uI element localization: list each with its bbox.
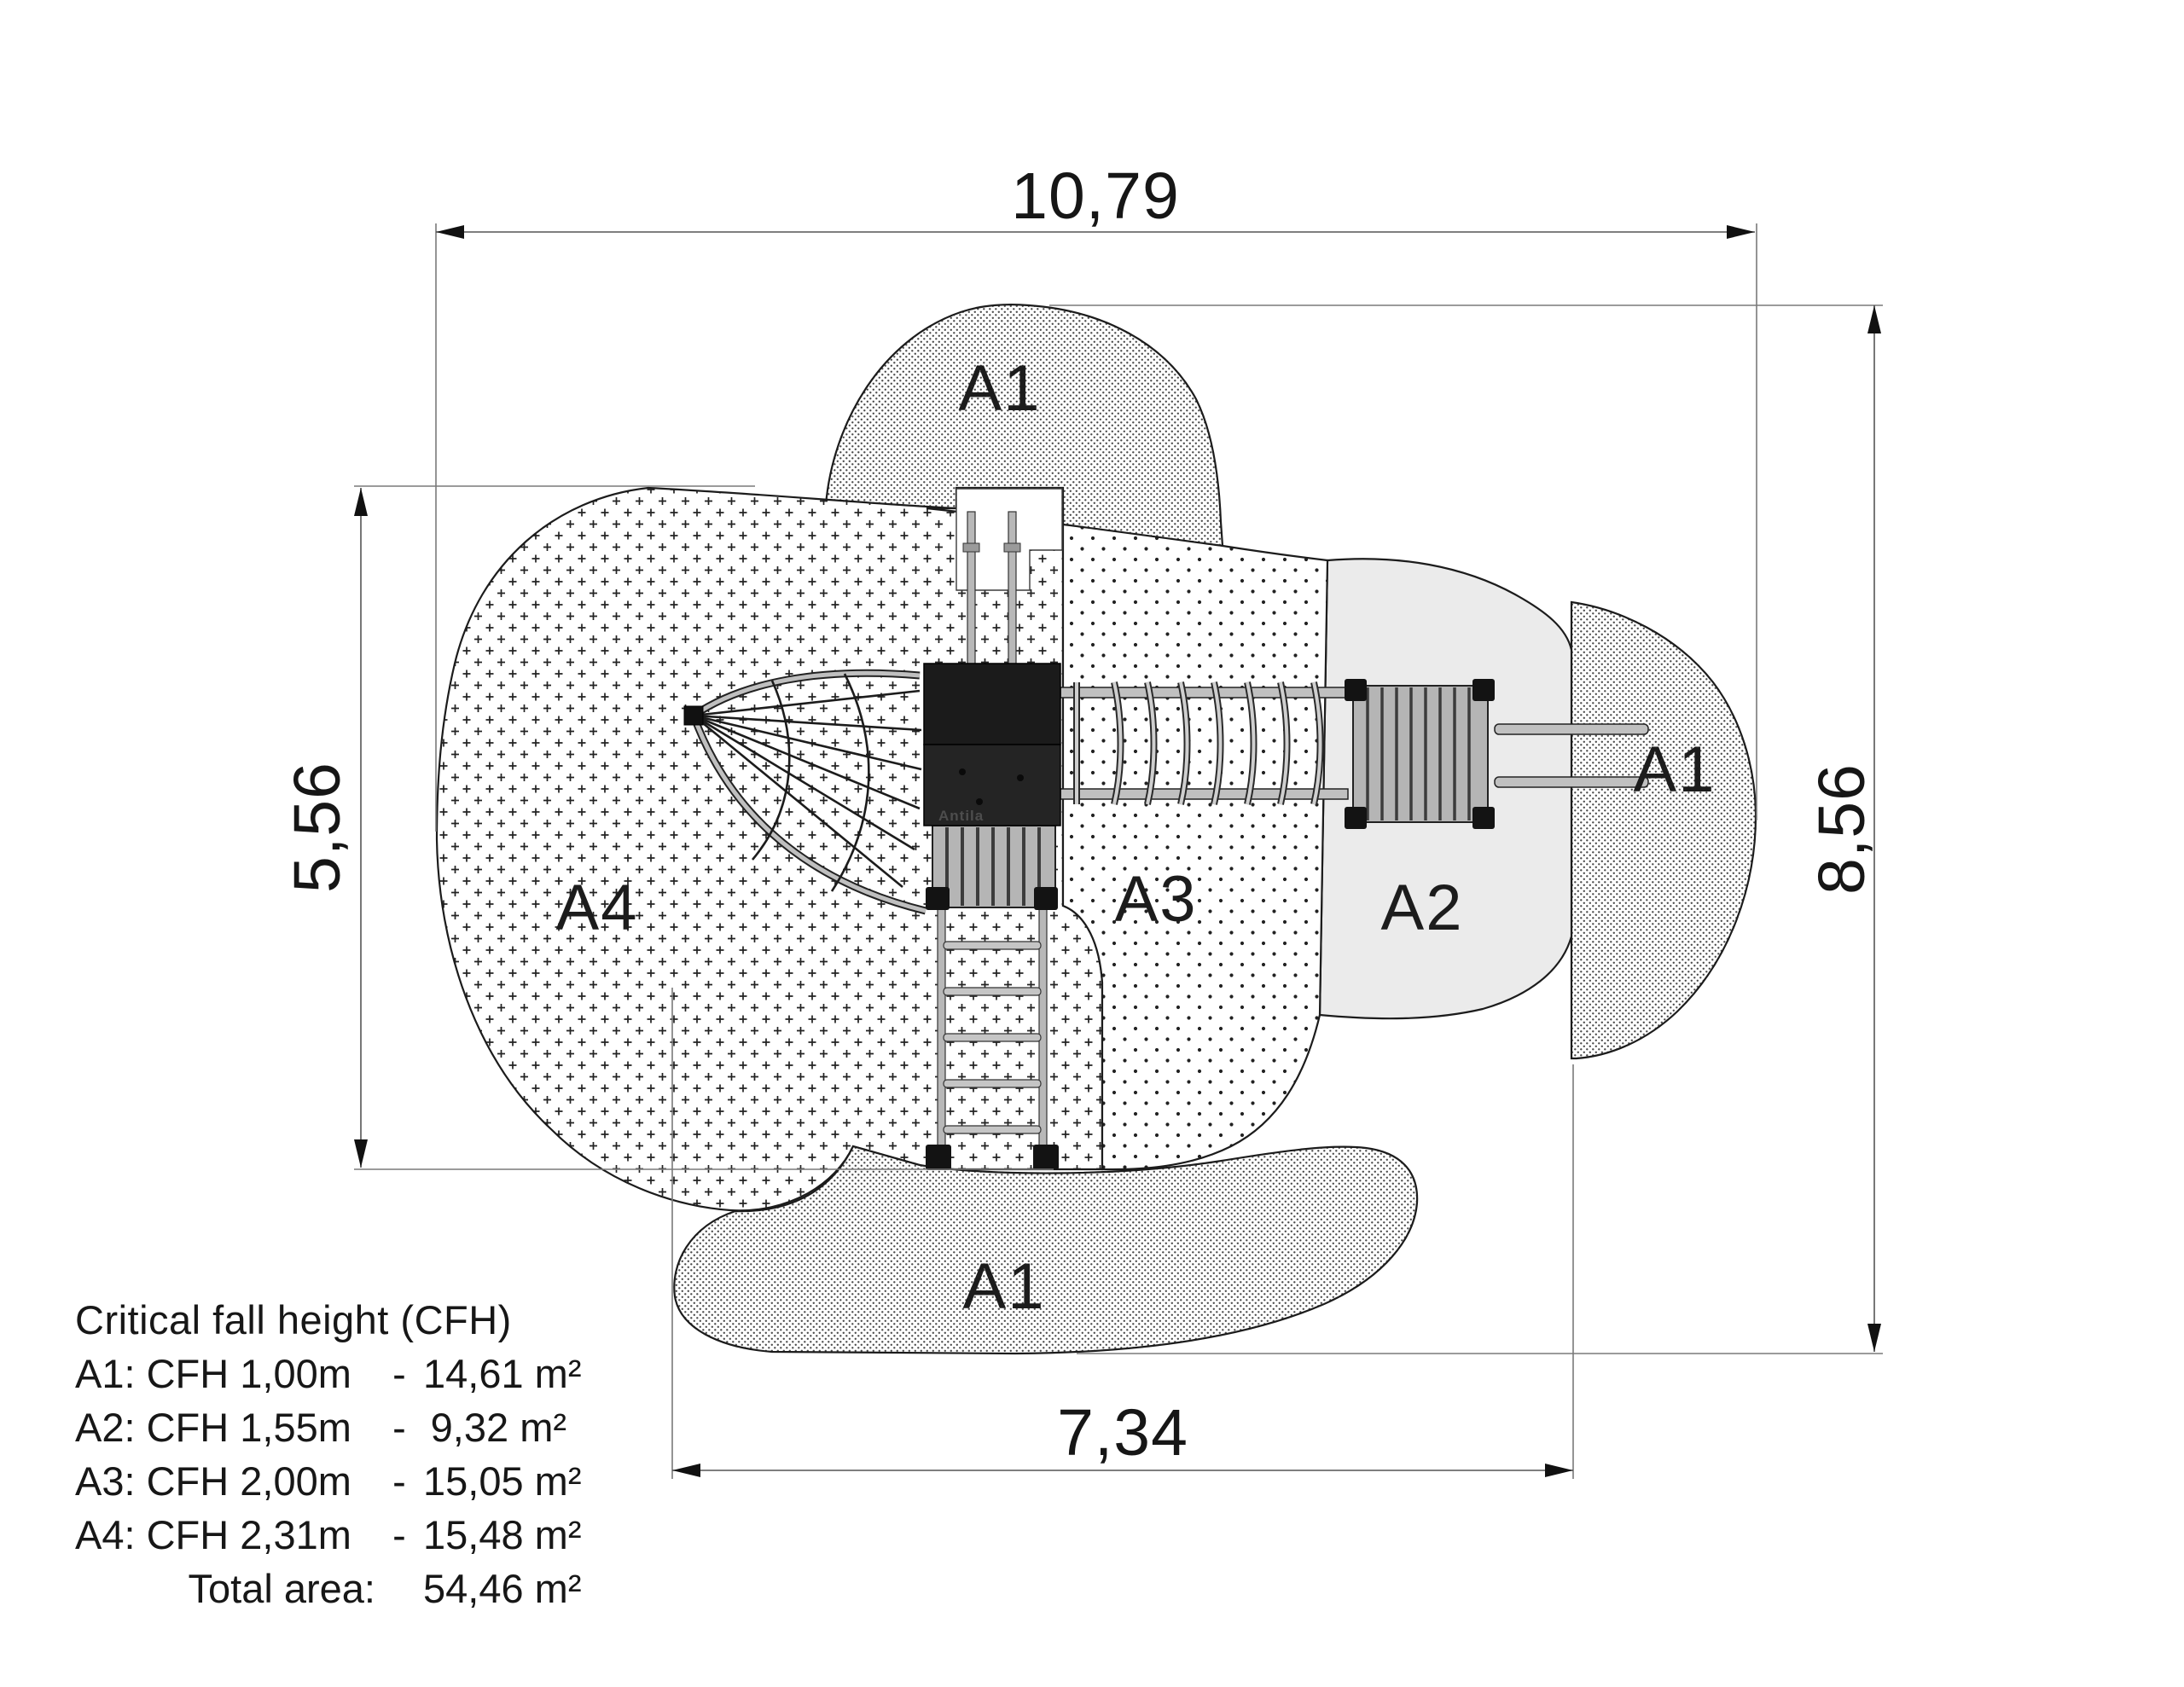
dimension-bottom-value: 7,34	[1057, 1396, 1188, 1470]
legend-row-value: 15,05 m²	[423, 1454, 566, 1508]
legend-title: Critical fall height (CFH)	[75, 1293, 566, 1347]
dimension-top-value: 10,79	[1011, 159, 1180, 233]
a2-platform	[1345, 679, 1495, 829]
zone-label-a1-top: A1	[959, 352, 1042, 425]
legend-row-label: A2: CFH 1,55m	[75, 1400, 375, 1454]
zone-label-a2: A2	[1381, 872, 1464, 944]
tower-ramp	[926, 826, 1058, 910]
cfh-legend: Critical fall height (CFH) A1: CFH 1,00m…	[75, 1293, 566, 1615]
bottom-ladder	[926, 907, 1059, 1170]
legend-row-value: 14,61 m²	[423, 1347, 566, 1400]
legend-total-label: Total area:	[75, 1562, 375, 1615]
zone-a1-right-area	[1571, 602, 1756, 1058]
dimension-left-value: 5,56	[281, 762, 354, 893]
legend-row-label: A4: CFH 2,31m	[75, 1508, 375, 1562]
tower: Antila	[924, 664, 1060, 826]
dimension-right-value: 8,56	[1805, 763, 1879, 895]
brand-label: Antila	[938, 808, 984, 824]
zone-label-a4: A4	[556, 872, 639, 944]
legend-row-sep: -	[375, 1508, 423, 1562]
zone-label-a3: A3	[1115, 863, 1198, 936]
legend-row-value: 15,48 m²	[423, 1508, 566, 1562]
zone-label-a1-right: A1	[1634, 733, 1716, 806]
legend-row-sep: -	[375, 1347, 423, 1400]
legend-row-label: A3: CFH 2,00m	[75, 1454, 375, 1508]
legend-total-value: 54,46 m²	[423, 1562, 566, 1615]
legend-row-sep: -	[375, 1400, 423, 1454]
legend-row-label: A1: CFH 1,00m	[75, 1347, 375, 1400]
legend-row-value: 9,32 m²	[423, 1400, 566, 1454]
legend-row-sep: -	[375, 1454, 423, 1508]
zone-label-a1-bottom: A1	[963, 1250, 1046, 1323]
legend-total-sep	[375, 1562, 423, 1615]
